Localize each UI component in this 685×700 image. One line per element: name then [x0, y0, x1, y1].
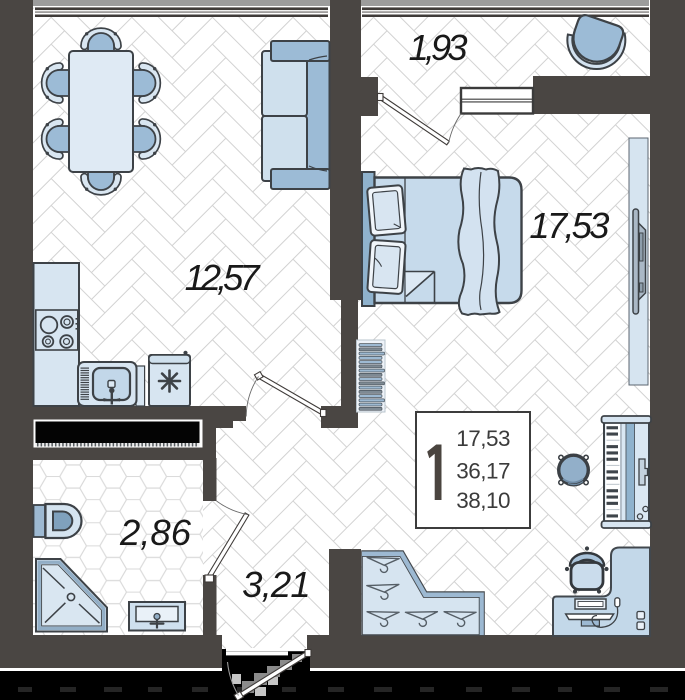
svg-text:2,86: 2,86 [119, 512, 192, 553]
svg-text:36,17: 36,17 [456, 459, 510, 484]
svg-text:12,57: 12,57 [185, 257, 262, 298]
svg-text:17,53: 17,53 [456, 426, 510, 451]
svg-text:38,10: 38,10 [456, 488, 510, 513]
svg-text:3,21: 3,21 [242, 564, 310, 605]
svg-text:1,93: 1,93 [408, 27, 467, 68]
svg-text:17,53: 17,53 [529, 205, 609, 246]
